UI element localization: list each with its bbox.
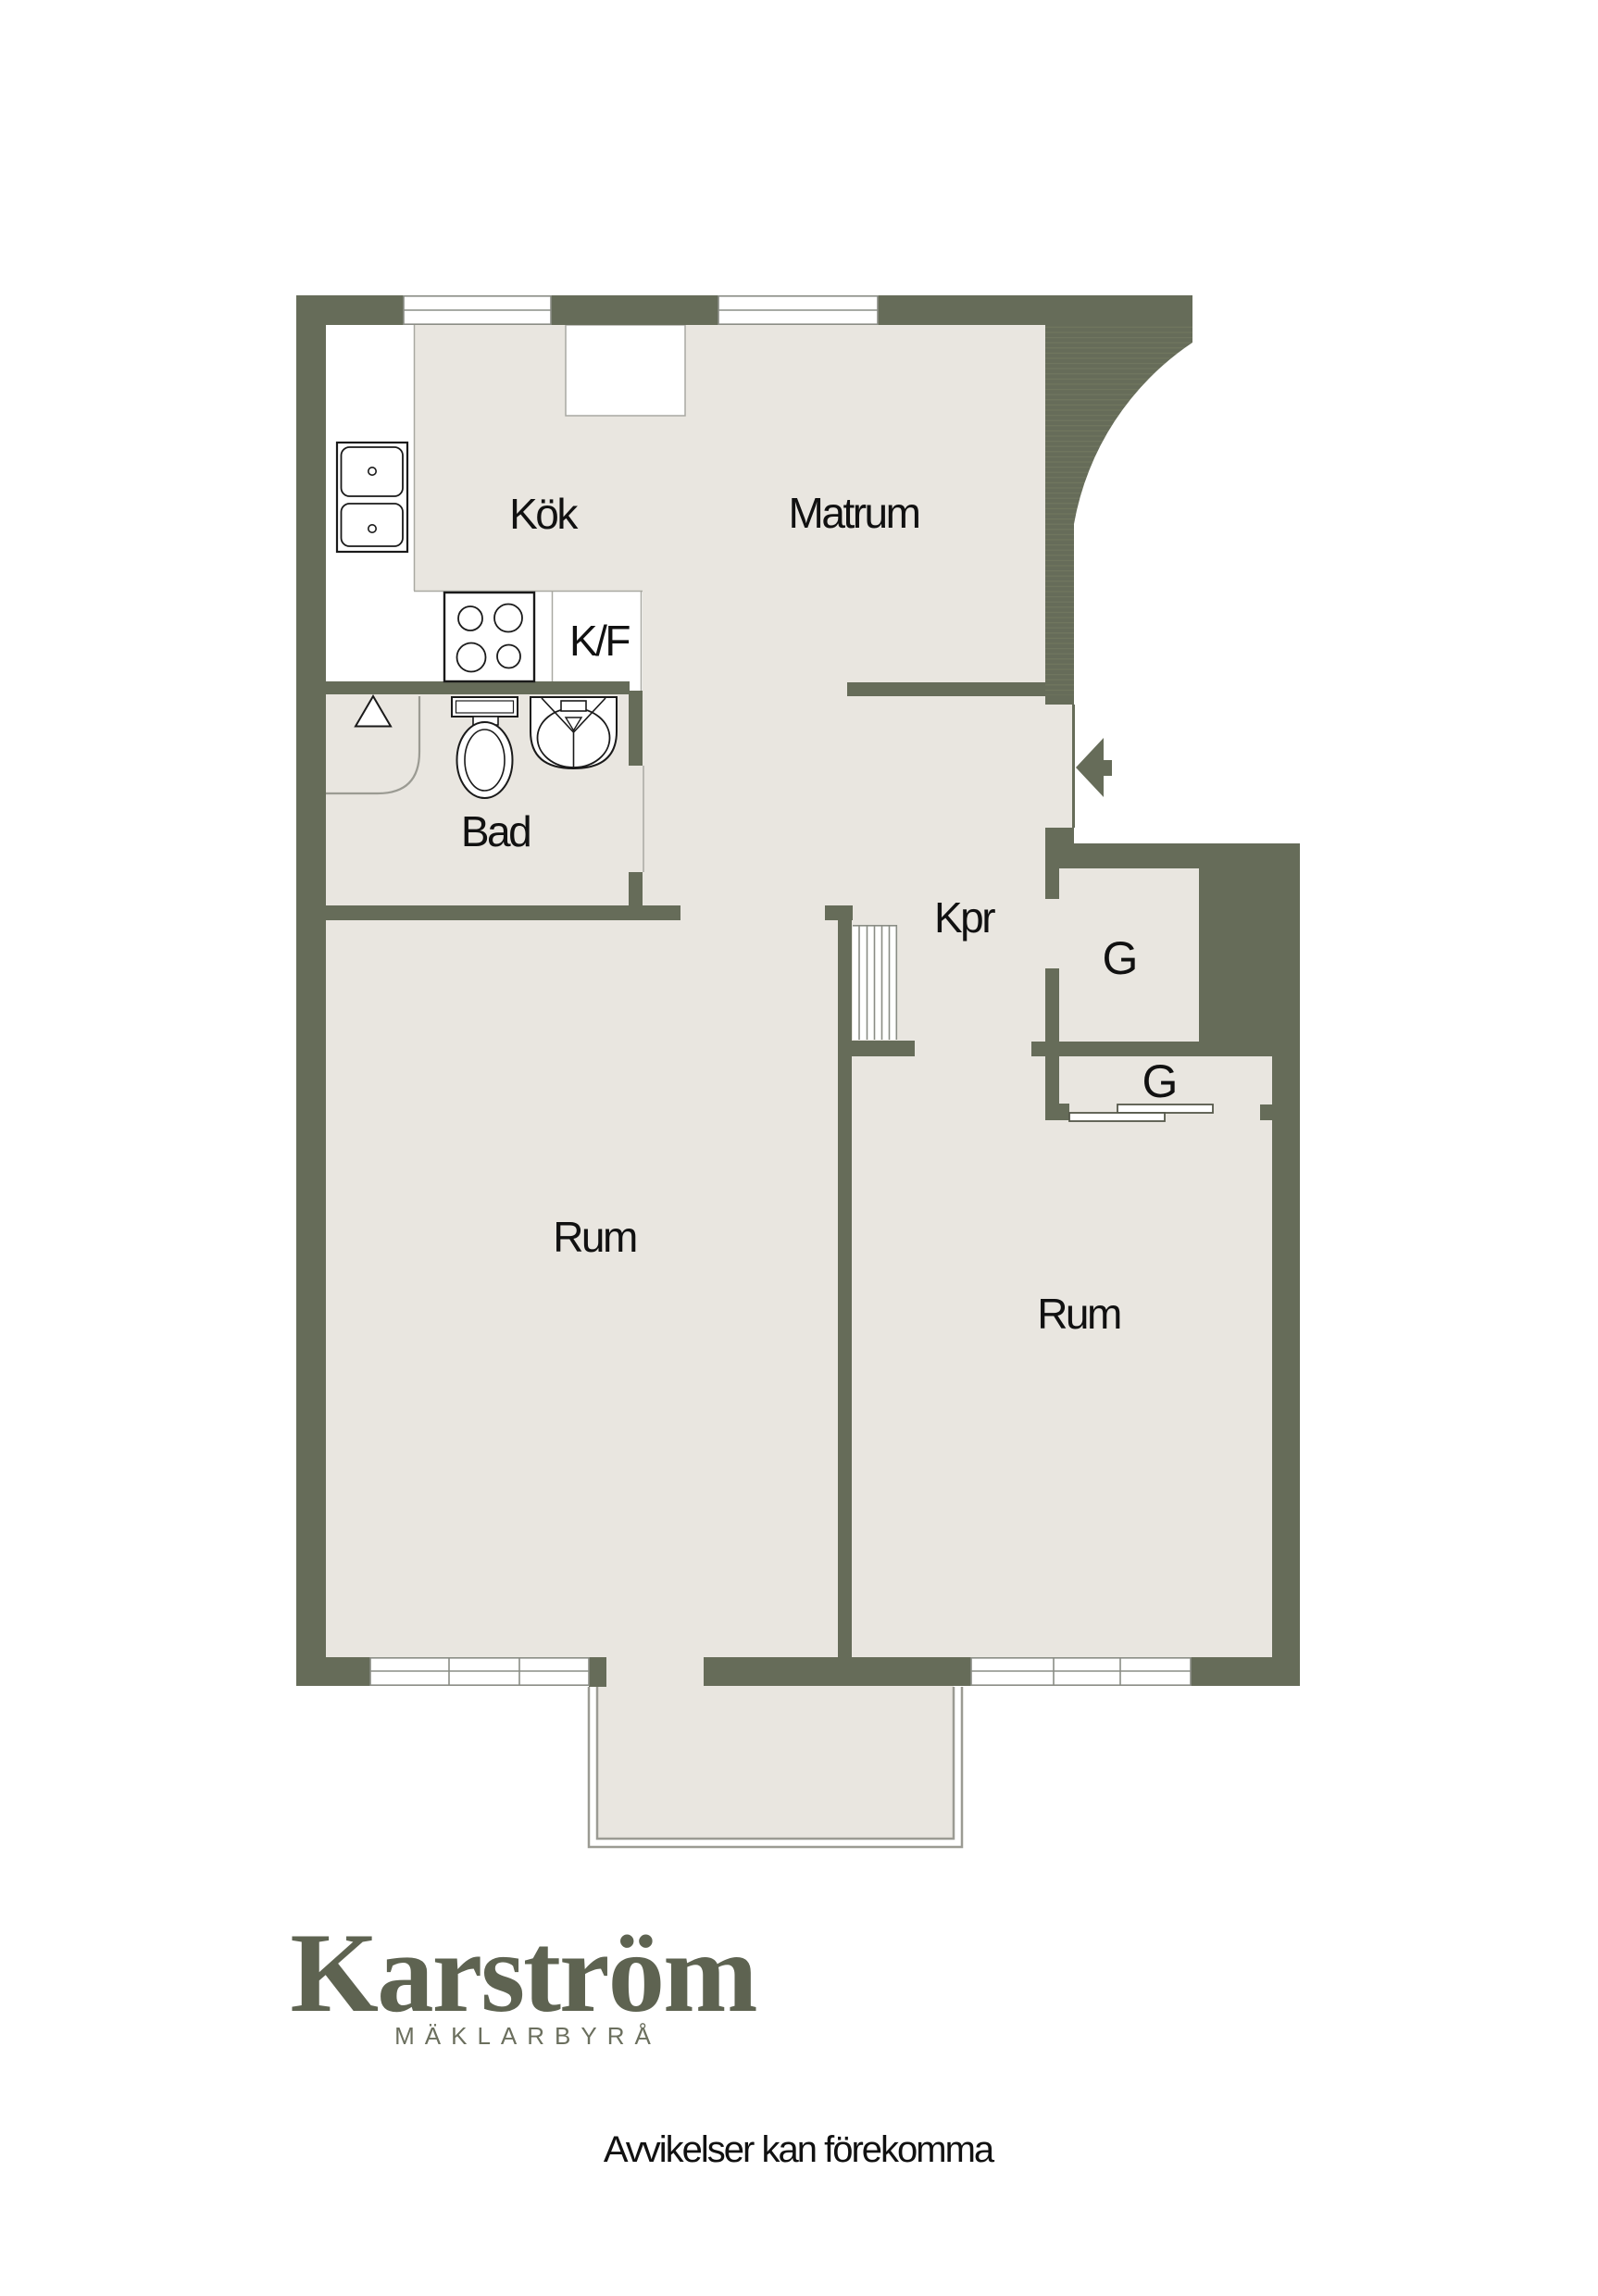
svg-text:Kök: Kök	[509, 490, 579, 538]
svg-text:G: G	[1103, 932, 1139, 984]
svg-text:MÄKLARBYRÅ: MÄKLARBYRÅ	[394, 2022, 661, 2050]
svg-text:K/F: K/F	[569, 617, 630, 665]
svg-text:Avvikelser kan förekomma: Avvikelser kan förekomma	[604, 2129, 995, 2170]
svg-text:Bad: Bad	[461, 807, 530, 855]
svg-text:Rum: Rum	[1037, 1290, 1120, 1338]
svg-text:Kpr: Kpr	[934, 893, 995, 942]
svg-text:Rum: Rum	[553, 1213, 636, 1261]
svg-text:G: G	[1142, 1055, 1179, 1107]
svg-text:Matrum: Matrum	[789, 489, 919, 537]
svg-text:Karström: Karström	[290, 1909, 756, 2036]
